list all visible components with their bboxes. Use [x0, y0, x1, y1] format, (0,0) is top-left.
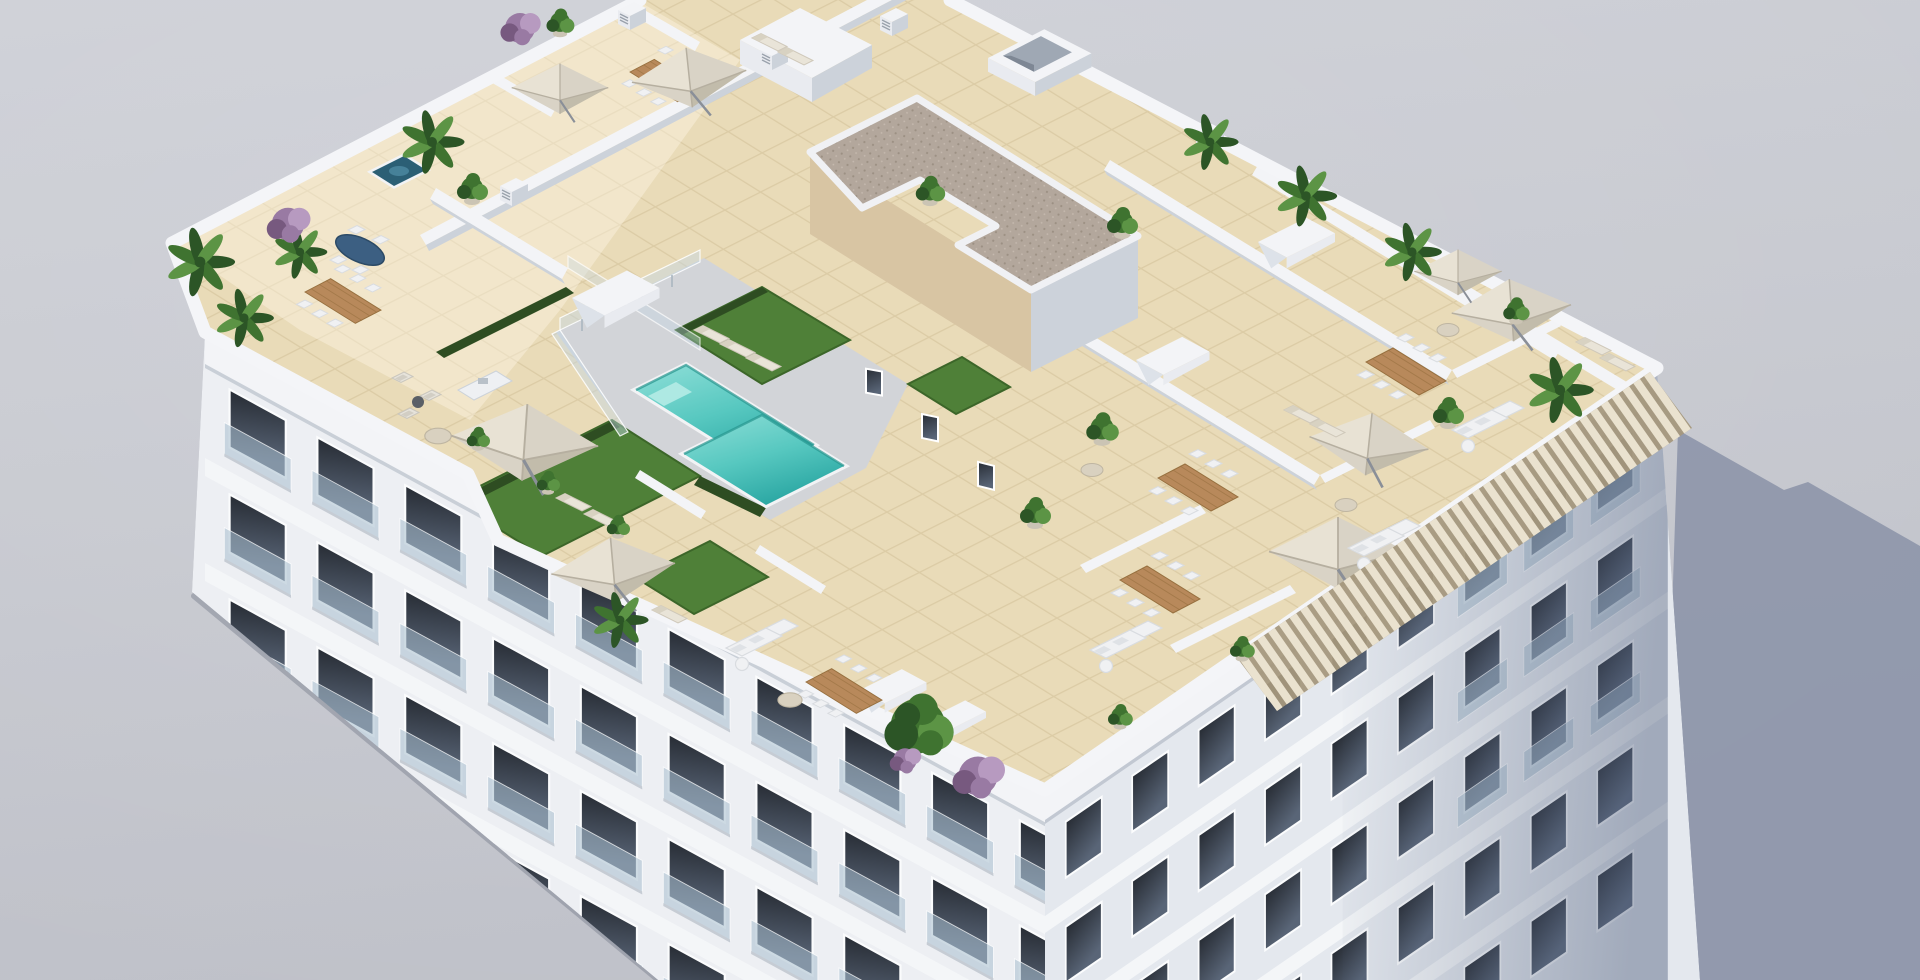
- round-table-east-3: [1437, 324, 1459, 337]
- round-table-left: [425, 428, 451, 444]
- fire-pit-pouf: [412, 396, 424, 408]
- round-table-south: [778, 693, 802, 707]
- round-table-east-1: [1335, 499, 1357, 512]
- rooftop-render: [0, 0, 1920, 980]
- round-table-east-2: [1081, 464, 1103, 477]
- render-viewport: [0, 0, 1920, 980]
